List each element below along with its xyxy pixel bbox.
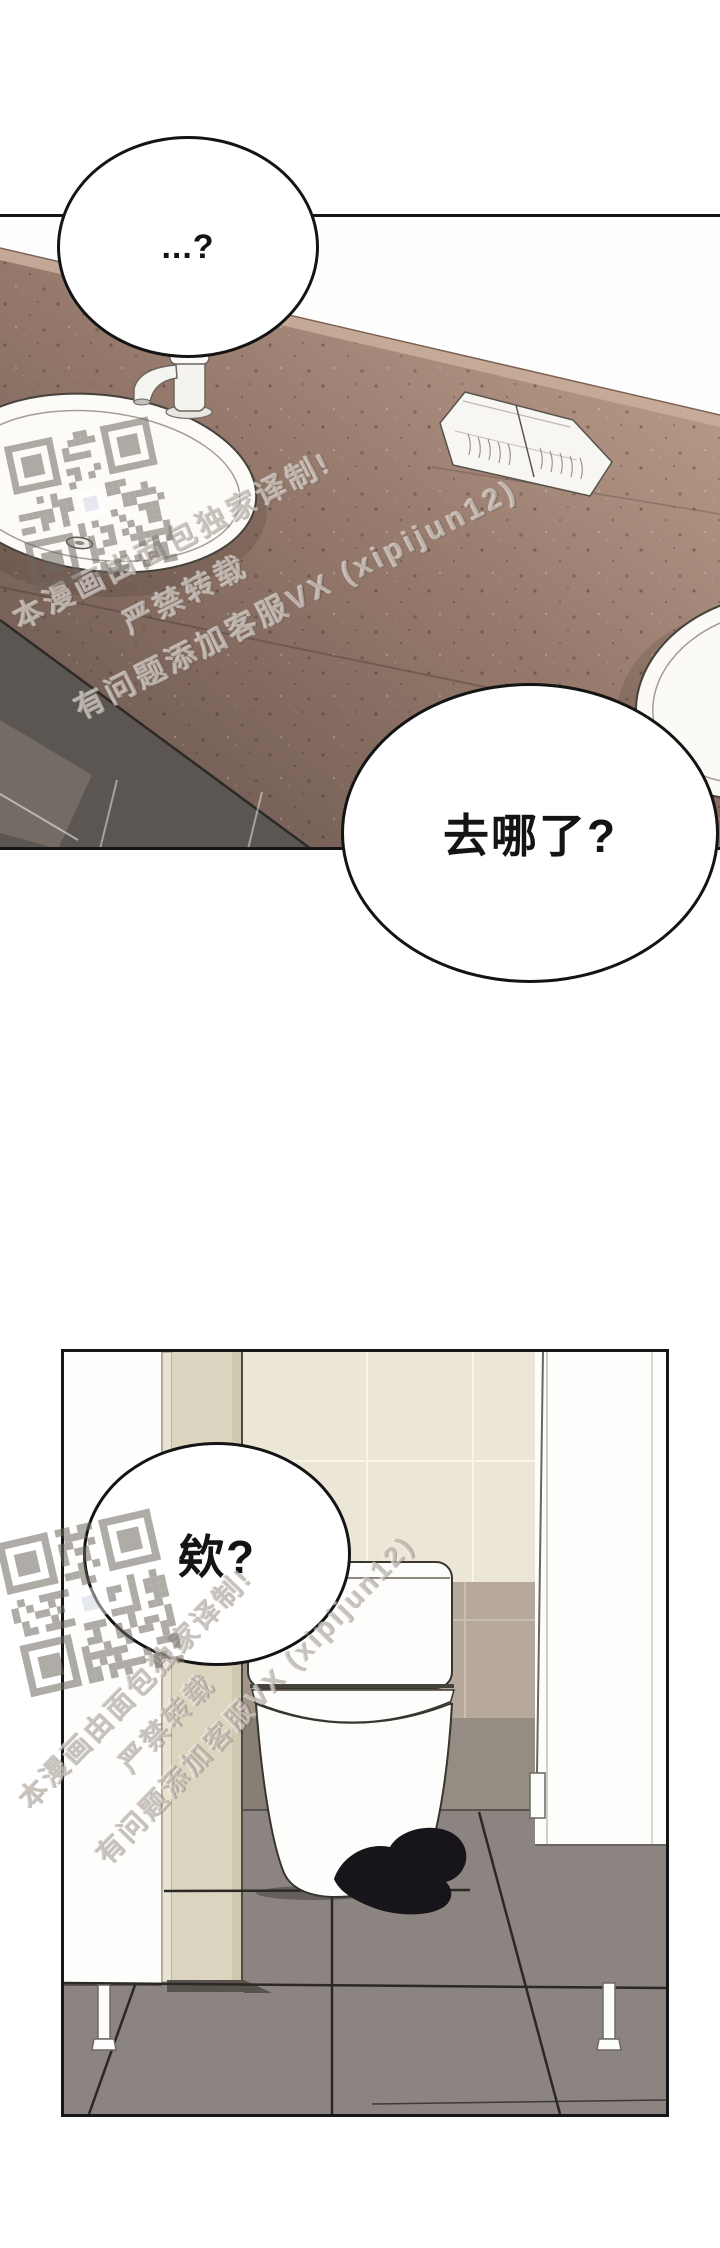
comic-page: ...? 去哪了? 欸? 本漫画由面包独家译制! 严禁转载 有问题添加客服VX … <box>0 0 720 2248</box>
speech-bubble-text: 去哪了? <box>443 800 617 866</box>
speech-bubble-where-did-it-go: 去哪了? <box>341 683 719 983</box>
qr-watermark-icon <box>4 416 179 595</box>
speech-bubble-ellipsis: ...? <box>57 136 319 358</box>
right-partition <box>530 1352 666 1845</box>
speech-bubble-text: ...? <box>161 228 214 267</box>
